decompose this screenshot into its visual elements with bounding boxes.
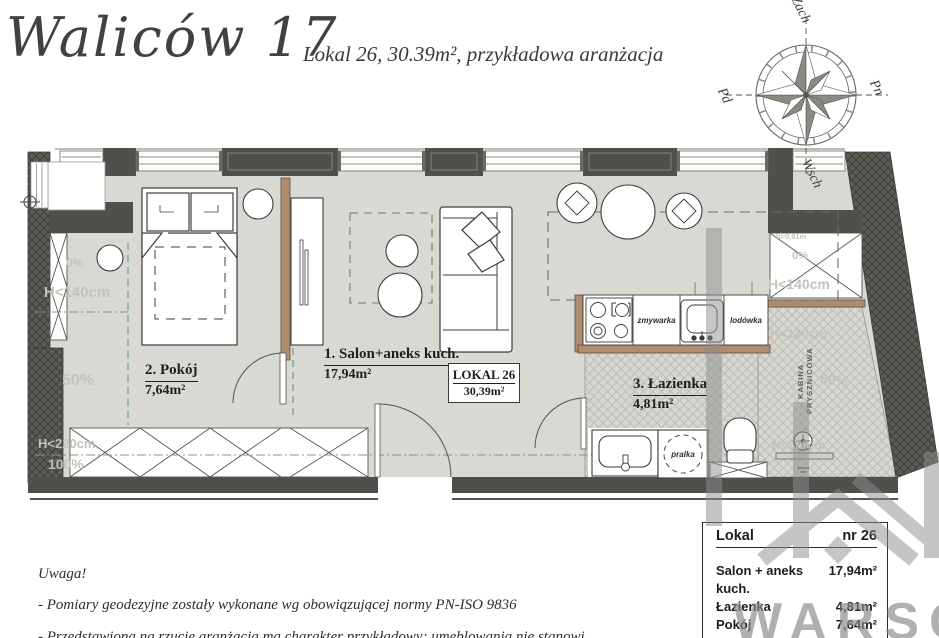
room-label-lazienka: 3. Łazienka 4,81m² bbox=[633, 374, 707, 413]
room-lazienka-name: 3. Łazienka bbox=[633, 375, 707, 396]
zone-right-0pct: 0% bbox=[792, 250, 808, 262]
zone-right-h140-a: H<140cm bbox=[768, 276, 830, 292]
zone-left-100pct: 100% bbox=[48, 456, 84, 472]
zone-right-h091: h=0,91m bbox=[776, 232, 806, 241]
unit-area: 30,39m² bbox=[449, 384, 519, 399]
room-salon-area: 17,94m² bbox=[324, 366, 459, 384]
summary-header-row: Lokal nr 26 bbox=[716, 528, 877, 548]
fridge-label: lodówka bbox=[724, 316, 768, 325]
unit-name: LOKAL 26 bbox=[453, 367, 516, 384]
stove bbox=[586, 298, 632, 342]
summary-header-value: nr 26 bbox=[842, 528, 877, 544]
notes-heading: Uwaga! bbox=[38, 566, 86, 583]
room-label-pokoj: 2. Pokój 7,64m² bbox=[145, 360, 198, 399]
sink bbox=[681, 300, 723, 342]
unit-label-box: LOKAL 26 30,39m² bbox=[448, 363, 520, 403]
zone-left-0pct: 0% bbox=[66, 256, 83, 270]
page-subtitle: Lokal 26, 30.39m², przykładowa aranżacja bbox=[303, 42, 663, 67]
zone-right-h220: H<220cm bbox=[772, 438, 825, 452]
room-label-salon: 1. Salon+aneks kuch. 17,94m² bbox=[324, 344, 459, 383]
wardrobe bbox=[291, 198, 323, 345]
washer-label: pralka bbox=[658, 450, 708, 459]
watermark-text: WARSO bbox=[733, 592, 939, 638]
floorplan-page: Waliców 17 Lokal 26, 30.39m², przykładow… bbox=[0, 0, 939, 638]
washbasin bbox=[592, 430, 658, 476]
dishwasher-label: zmywarka bbox=[633, 316, 680, 325]
toilet bbox=[724, 418, 756, 463]
summary-header-label: Lokal bbox=[716, 528, 754, 544]
notes-line-2: - Przedstawiona na rzucie aranżacja ma c… bbox=[38, 629, 585, 638]
room-salon-name: 1. Salon+aneks kuch. bbox=[324, 345, 459, 366]
zone-left-50pct: 50% bbox=[62, 372, 94, 390]
room-lazienka-area: 4,81m² bbox=[633, 396, 707, 414]
room-pokoj-area: 7,64m² bbox=[145, 382, 198, 400]
page-title: Waliców 17 bbox=[6, 6, 338, 69]
zone-left-h140: H<140cm bbox=[44, 284, 110, 301]
shower-cabin-label: KABINA PRYSZNICOWA bbox=[796, 330, 814, 432]
notes-line-1: - Pomiary geodezyjne zostały wykonane wg… bbox=[38, 597, 517, 614]
sofa bbox=[440, 207, 512, 352]
zone-left-h220: H<220cm bbox=[38, 436, 95, 451]
bed bbox=[142, 188, 237, 345]
room-pokoj-name: 2. Pokój bbox=[145, 361, 198, 382]
